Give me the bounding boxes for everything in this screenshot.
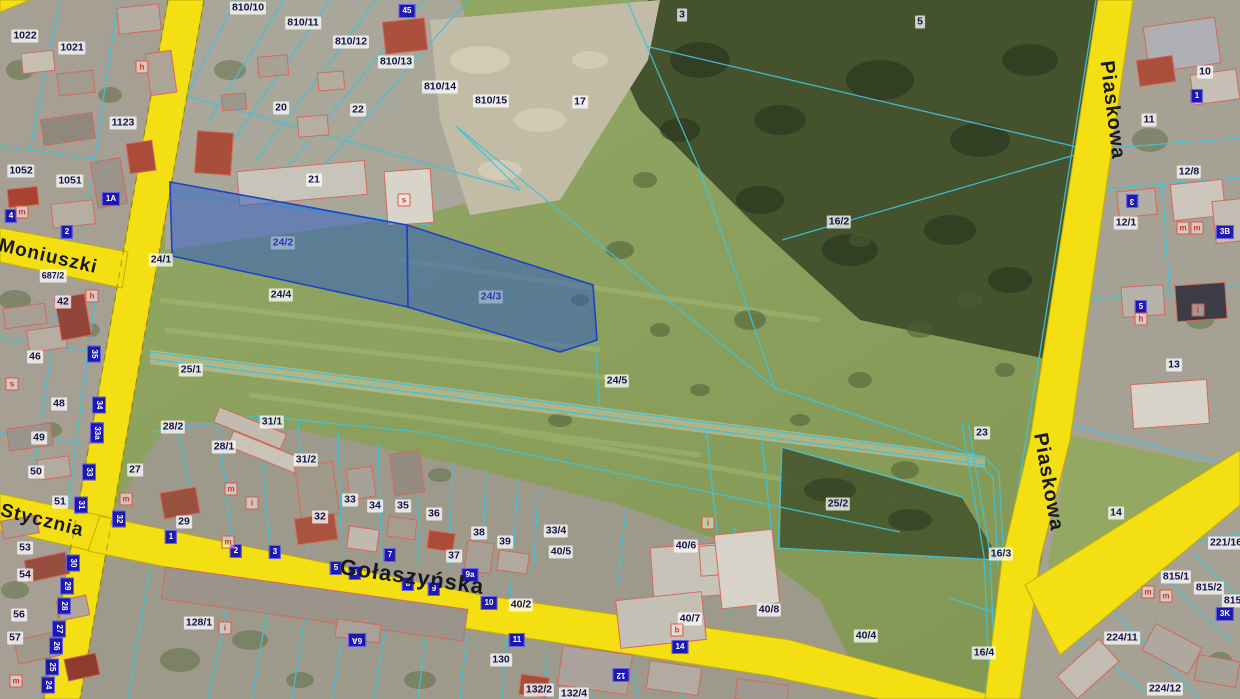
map-viewport[interactable]: 10221021112310521051810/10810/11810/1281… — [0, 0, 1240, 699]
map-canvas — [0, 0, 1240, 699]
